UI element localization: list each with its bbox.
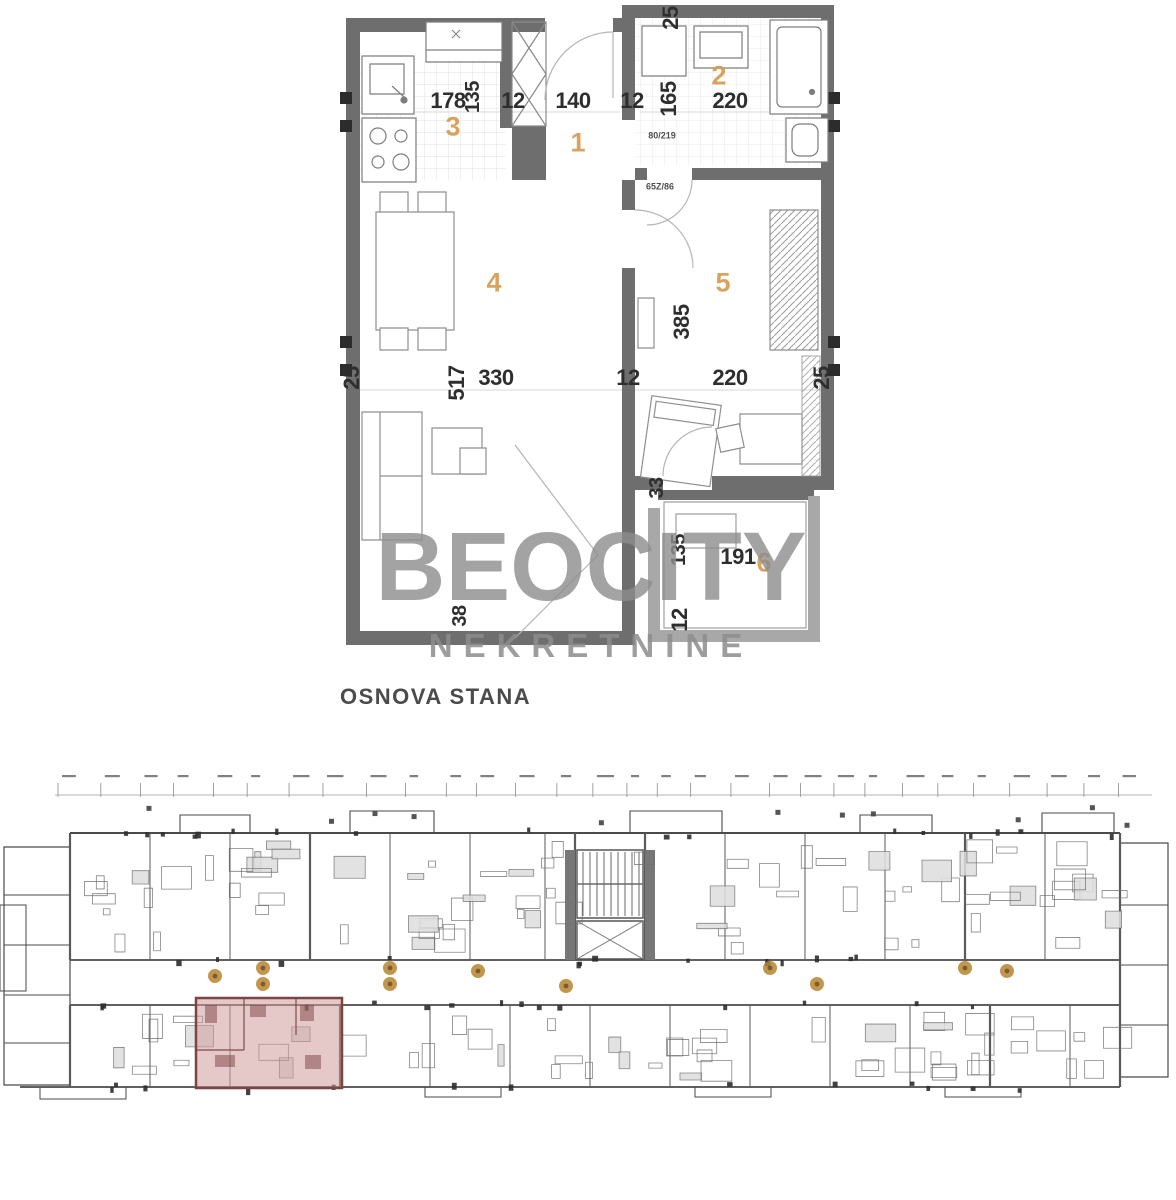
page-title: OSNOVA STANA [340, 684, 531, 710]
highlighted-unit [196, 998, 342, 1088]
desk-icon [716, 414, 802, 464]
coffee-table-icon [432, 428, 486, 474]
kitchen-counter [426, 22, 502, 62]
room-label-kitchen: 3 [445, 114, 460, 141]
room-label-living: 4 [486, 270, 501, 297]
sofa-icon [362, 412, 422, 540]
dimension-label: 385 [671, 304, 693, 339]
dimension-label: 135 [669, 534, 689, 566]
dimension-label: 191 [720, 546, 755, 568]
dimension-label: 330 [478, 367, 513, 389]
door-spec-label: 65Z/86 [646, 183, 674, 192]
tv-stand-icon [638, 298, 654, 348]
dimension-label: 140 [555, 90, 590, 112]
stove-icon [362, 118, 416, 182]
room-label-hallway: 1 [570, 130, 585, 157]
dimension-label: 135 [463, 81, 483, 113]
room-label-bedroom: 5 [715, 270, 730, 297]
bed-icon [640, 396, 721, 487]
dimension-ticks [58, 775, 1136, 828]
dimension-label: 12 [669, 608, 691, 631]
room-label-bathroom: 2 [711, 63, 726, 90]
floorplan-page: { "title": "OSNOVA STANA", "watermark": … [0, 0, 1176, 1200]
dimension-label: 12 [616, 367, 639, 389]
dimension-label: 12 [620, 90, 643, 112]
sink-icon [362, 56, 414, 114]
dimension-label: 33 [647, 477, 667, 498]
building-floor-plan [0, 755, 1176, 1100]
toilet-icon [786, 118, 828, 162]
wardrobe-icon [770, 210, 818, 350]
dimension-label: 25 [341, 366, 363, 389]
dimension-label: 25 [811, 366, 833, 389]
corridor-badge [208, 961, 1014, 993]
dimension-label: 178 [430, 90, 465, 112]
dimension-label: 25 [660, 6, 682, 29]
dimension-label: 220 [712, 90, 747, 112]
washing-machine-icon [642, 26, 686, 76]
stairs-icon [565, 850, 655, 960]
dimension-label: 517 [446, 365, 468, 400]
dimension-label: 38 [450, 605, 470, 626]
dimension-label: 220 [712, 367, 747, 389]
room-label-terrace: 6 [756, 550, 771, 577]
dimension-label: 12 [501, 90, 524, 112]
dining-table-icon [376, 192, 454, 350]
door-spec-label: 80/219 [648, 132, 676, 141]
shower-icon [770, 20, 828, 114]
dimension-label: 165 [658, 81, 680, 116]
